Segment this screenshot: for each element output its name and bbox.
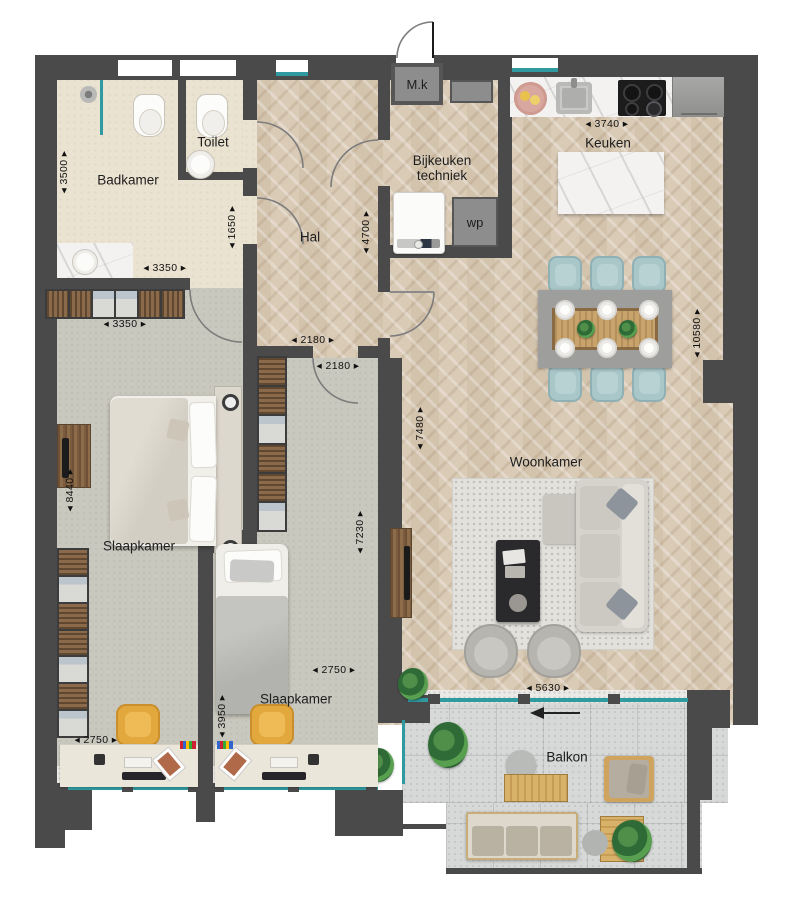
dim-slaapkamer2-height: ◂ 7230 ▸ bbox=[354, 511, 366, 554]
dim-right-side-height: ◂ 10580 ▸ bbox=[691, 308, 703, 357]
wall-bedroom-divider bbox=[198, 553, 213, 790]
wall-right-lower bbox=[733, 403, 758, 725]
plant-icon bbox=[619, 320, 637, 338]
wall-balcony-left-thin bbox=[400, 824, 446, 829]
wall-bijkeuken-left-3 bbox=[378, 338, 390, 358]
outdoor-table bbox=[504, 774, 568, 802]
dim-slaapkamer2-lower-height: ◂ 3950 ▸ bbox=[216, 695, 228, 738]
accent-pillow bbox=[166, 498, 189, 521]
bookstack-icon bbox=[180, 741, 196, 749]
floor-plan: M.k wp bbox=[0, 0, 790, 904]
wall-right-protrusion bbox=[703, 360, 758, 403]
window-frame-nub bbox=[518, 694, 530, 704]
room-label-slaapkamer-1: Slaapkamer bbox=[103, 539, 175, 554]
toilet-window bbox=[180, 60, 236, 76]
hal-window-glass bbox=[276, 72, 308, 76]
plant-icon bbox=[612, 820, 652, 862]
desk-chair bbox=[116, 704, 160, 746]
window-frame-nub bbox=[428, 694, 440, 704]
keuken-window-glass bbox=[512, 68, 558, 72]
wall-balcony-right-1 bbox=[687, 690, 730, 728]
toilet-door-opening bbox=[243, 120, 257, 168]
plate-icon bbox=[555, 300, 575, 320]
dining-chair bbox=[548, 364, 582, 402]
dim-badkamer-width: ◂ 3350 ▸ bbox=[144, 262, 187, 274]
dim-slaapkamer2-opening: ◂ 2180 ▸ bbox=[317, 360, 360, 372]
dim-hal-height: ◂ 4700 ▸ bbox=[360, 211, 372, 254]
wall-bijkeuken-left-1 bbox=[378, 80, 390, 140]
tv-icon bbox=[404, 546, 410, 600]
pillow bbox=[189, 402, 217, 469]
shower-head-icon bbox=[80, 86, 97, 103]
bookstack-icon bbox=[217, 741, 233, 749]
keyboard-icon bbox=[270, 757, 298, 768]
room-label-toilet: Toilet bbox=[197, 135, 229, 150]
plant-icon bbox=[398, 668, 428, 700]
wall-badkamer-hal-3 bbox=[243, 244, 257, 553]
plate-icon bbox=[639, 300, 659, 320]
room-label-balkon: Balkon bbox=[546, 750, 587, 765]
badkamer-door-opening bbox=[243, 196, 257, 244]
dim-badkamer-height: ◂ 3500 ▸ bbox=[58, 151, 70, 194]
room-label-keuken: Keuken bbox=[585, 136, 631, 151]
toilet-icon bbox=[196, 94, 228, 138]
tablet-icon bbox=[94, 754, 105, 765]
plate-icon bbox=[555, 338, 575, 358]
dim-slaapkamer1-height: ◂ 8440 ▸ bbox=[64, 469, 76, 512]
window-frame-nub bbox=[608, 694, 620, 704]
wall-toilet-left bbox=[178, 80, 186, 180]
badkamer-window bbox=[118, 60, 172, 76]
single-bed bbox=[216, 544, 288, 714]
wall-badkamer-hal-1 bbox=[243, 80, 257, 120]
armchair bbox=[464, 624, 518, 678]
bedside-lamp-icon bbox=[222, 394, 239, 411]
dim-woonkamer-height: ◂ 7480 ▸ bbox=[414, 407, 426, 450]
dining-chair bbox=[548, 256, 582, 294]
monitor-icon bbox=[122, 772, 166, 780]
desk-chair bbox=[250, 704, 294, 746]
dining-chair bbox=[590, 256, 624, 294]
wardrobe bbox=[257, 356, 287, 532]
woonkamer-window-glass bbox=[408, 698, 688, 702]
shower-glass bbox=[100, 80, 103, 135]
headboard bbox=[214, 386, 242, 554]
room-label-badkamer: Badkamer bbox=[97, 173, 159, 188]
kitchen-island bbox=[558, 152, 664, 214]
lounge-chair bbox=[604, 756, 654, 802]
dim-wardrobe-width: ◂ 3350 ▸ bbox=[104, 318, 147, 330]
wall-left bbox=[35, 55, 57, 790]
pillow bbox=[189, 476, 217, 543]
dim-woonkamer-width: ◂ 5630 ▸ bbox=[527, 682, 570, 694]
balcony-side-glass bbox=[402, 720, 405, 784]
dim-toilet-height: ◂ 1650 ▸ bbox=[226, 206, 238, 249]
meter-cupboard-box: M.k bbox=[391, 63, 443, 105]
sofa bbox=[576, 480, 648, 632]
pillar-left-1 bbox=[35, 790, 92, 830]
sink-icon bbox=[556, 82, 592, 114]
room-label-woonkamer: Woonkamer bbox=[510, 455, 583, 470]
dim-keuken-width: ◂ 3740 ▸ bbox=[586, 118, 629, 130]
washing-machine-icon bbox=[393, 192, 445, 254]
room-label-slaapkamer-2: Slaapkamer bbox=[260, 692, 332, 707]
wall-balcony-right-3 bbox=[687, 800, 700, 872]
monitor-icon bbox=[262, 772, 306, 780]
plate-icon bbox=[597, 338, 617, 358]
wall-bijkeuken-left-2 bbox=[378, 186, 390, 292]
plant-icon bbox=[577, 320, 595, 338]
plate-icon bbox=[597, 300, 617, 320]
heat-pump-box: wp bbox=[452, 197, 498, 247]
fridge-icon bbox=[672, 77, 724, 117]
toilet-icon bbox=[133, 94, 165, 137]
wall-badkamer-hal-2 bbox=[243, 168, 257, 196]
washbasin-icon bbox=[72, 249, 98, 275]
serving-plate-icon bbox=[514, 82, 547, 115]
toilet-basin-icon bbox=[186, 150, 215, 179]
wall-right-top bbox=[723, 77, 758, 360]
armchair bbox=[527, 624, 581, 678]
dining-chair bbox=[632, 256, 666, 294]
double-bed bbox=[110, 396, 216, 546]
pillow bbox=[230, 559, 275, 583]
room-label-hal: Hal bbox=[300, 230, 320, 245]
room-label-bijkeuken: Bijkeuken techniek bbox=[400, 153, 484, 183]
dining-chair bbox=[632, 364, 666, 402]
round-side-table bbox=[582, 830, 608, 856]
storage-cabinet-box bbox=[450, 80, 493, 103]
tall-wardrobe bbox=[57, 548, 89, 738]
heat-pump-label: wp bbox=[454, 199, 496, 245]
pillar-bedroom2 bbox=[335, 790, 403, 836]
tablet-icon bbox=[308, 754, 319, 765]
hob-icon bbox=[618, 80, 666, 116]
accent-pillow bbox=[166, 418, 190, 442]
dim-hal-opening: ◂ 2180 ▸ bbox=[292, 334, 335, 346]
dim-slaapkamer1-width: ◂ 2750 ▸ bbox=[75, 734, 118, 746]
dining-chair bbox=[590, 364, 624, 402]
outdoor-sofa bbox=[466, 812, 578, 860]
meter-cupboard-label: M.k bbox=[395, 67, 439, 101]
wall-balcony-right-2 bbox=[687, 728, 712, 800]
coffee-table bbox=[496, 540, 540, 622]
plate-icon bbox=[639, 338, 659, 358]
keyboard-icon bbox=[124, 757, 152, 768]
wardrobe bbox=[45, 289, 185, 319]
entrance-door-arc bbox=[397, 22, 433, 58]
wall-balcony-bottom bbox=[446, 868, 702, 874]
plant-icon bbox=[428, 722, 468, 768]
dim-slaapkamer2-width: ◂ 2750 ▸ bbox=[313, 664, 356, 676]
pillar-middle bbox=[196, 790, 215, 822]
pillar-left-2 bbox=[35, 830, 65, 848]
